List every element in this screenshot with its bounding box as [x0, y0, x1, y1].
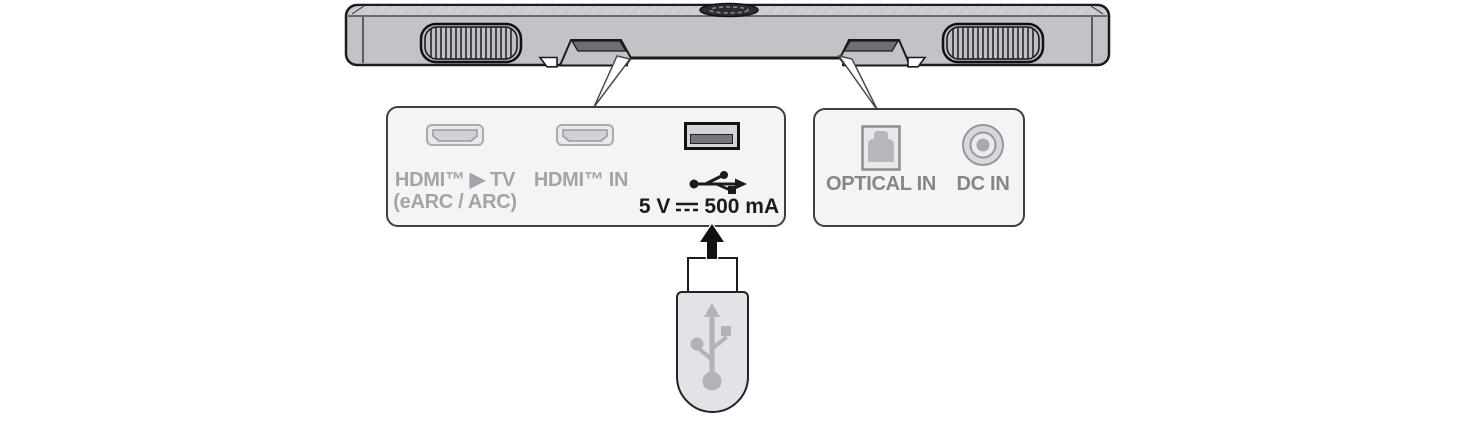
usb-rating-current: 500 mA — [704, 195, 779, 219]
dc-symbol-icon — [675, 200, 699, 214]
top-mount-oval — [700, 4, 758, 17]
optical-port-icon — [861, 125, 901, 171]
usb-trident-icon — [685, 303, 741, 395]
hdmi-in-label: HDMI™ IN — [514, 169, 648, 191]
usb-port-tongue — [690, 134, 733, 144]
usb-trident-icon — [689, 170, 747, 194]
dc-in-label: DC IN — [943, 173, 1023, 196]
right-speaker-grille — [943, 24, 1043, 62]
hdmi-port-icon — [426, 124, 484, 146]
bottom-cable-channel — [624, 58, 846, 69]
soundbar-body — [346, 4, 1109, 69]
usb-rating-voltage: 5 V — [639, 195, 671, 219]
hdmi-out-label: HDMI™ ▶ TV (eARC / ARC) — [388, 169, 522, 214]
left-speaker-grille — [421, 24, 521, 62]
hdmi-usb-panel: HDMI™ ▶ TV (eARC / ARC) HDMI™ IN 5 V — [386, 106, 786, 227]
usb-power-rating: 5 V 500 mA — [634, 195, 784, 219]
optical-dc-panel: OPTICAL IN DC IN — [813, 108, 1025, 227]
usb-drive-connector — [687, 257, 738, 294]
optical-in-label: OPTICAL IN — [815, 173, 947, 196]
usb-port-icon — [684, 122, 740, 150]
soundbar-connection-diagram: HDMI™ ▶ TV (eARC / ARC) HDMI™ IN 5 V — [0, 0, 1465, 424]
dc-jack-icon — [961, 123, 1005, 167]
hdmi-port-icon — [556, 124, 614, 146]
